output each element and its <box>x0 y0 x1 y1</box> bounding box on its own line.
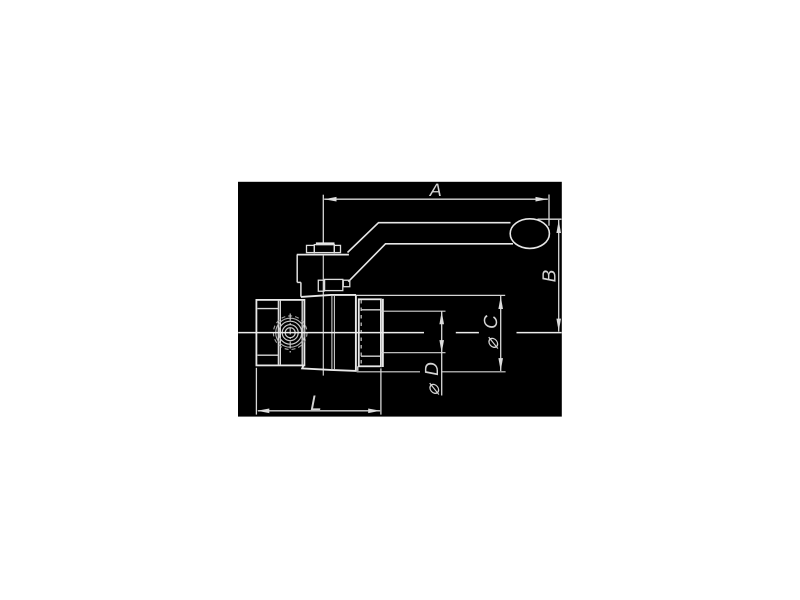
svg-text:B: B <box>539 269 560 282</box>
svg-text:A: A <box>429 180 442 200</box>
svg-text:C: C <box>481 315 502 329</box>
svg-text:⌀: ⌀ <box>423 383 444 396</box>
svg-text:D: D <box>422 362 443 376</box>
svg-text:L: L <box>310 392 322 415</box>
svg-text:⌀: ⌀ <box>482 337 503 350</box>
